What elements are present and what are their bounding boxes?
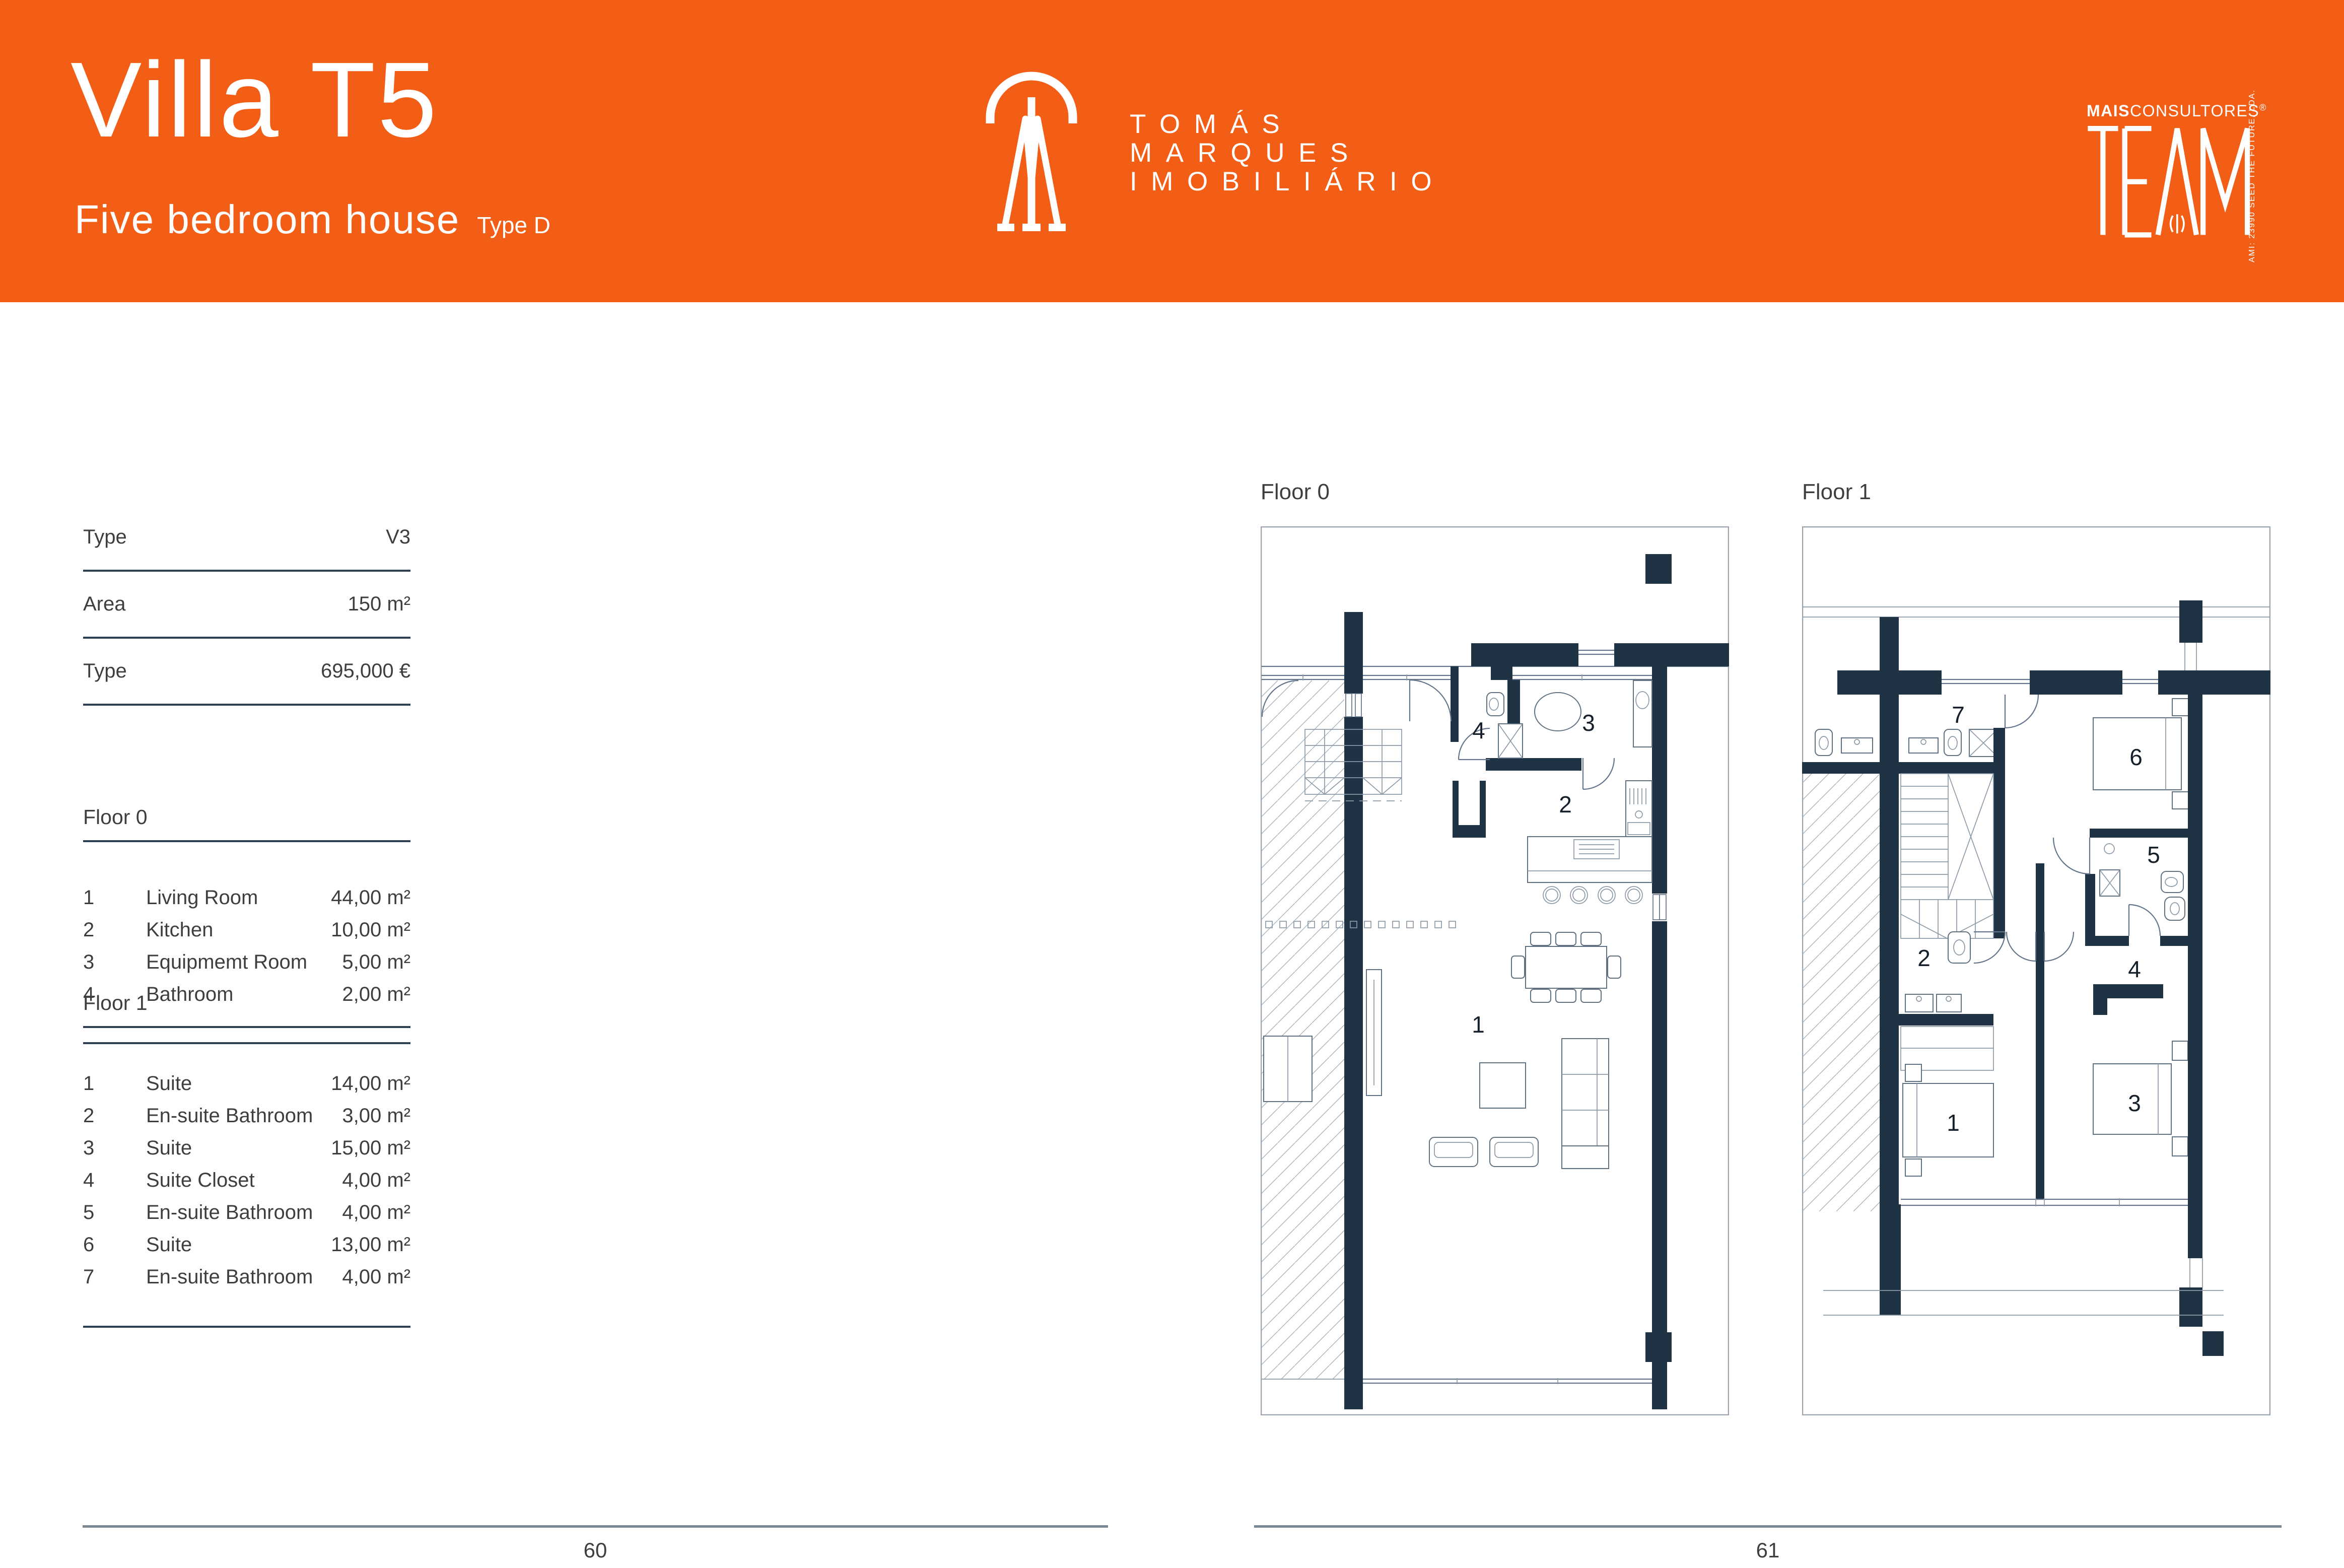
table-row: 1 Living Room 44,00 m² bbox=[83, 881, 410, 914]
room-area: 3,00 m² bbox=[342, 1105, 410, 1127]
floor1-table-rows: 1 Suite 14,00 m² 2 En-suite Bathroom 3,0… bbox=[83, 1028, 410, 1293]
header-band: Villa T5 Five bedroom house Type D TOMÁS… bbox=[0, 0, 2344, 302]
brand-name: TOMÁS MARQUES IMOBILIÁRIO bbox=[1130, 110, 1445, 196]
room-name: Living Room bbox=[146, 887, 331, 909]
brochure-page: Villa T5 Five bedroom house Type D TOMÁS… bbox=[0, 0, 2344, 1568]
floor1-room-2-label: 2 bbox=[1917, 945, 1931, 971]
spec-label: Type bbox=[83, 526, 127, 549]
brand-line-1: TOMÁS bbox=[1130, 110, 1445, 139]
floor1-room-6-label: 6 bbox=[2129, 744, 2143, 770]
room-area: 4,00 m² bbox=[342, 1169, 410, 1192]
footer-rule-right bbox=[1254, 1525, 2282, 1528]
page-subtitle: Five bedroom house Type D bbox=[75, 196, 550, 243]
page-title: Villa T5 bbox=[71, 46, 439, 153]
room-number: 2 bbox=[83, 1105, 146, 1127]
tm-monogram-icon bbox=[946, 70, 1117, 241]
room-number: 7 bbox=[83, 1266, 146, 1288]
room-area: 44,00 m² bbox=[331, 887, 410, 909]
spec-row-price: Type 695,000 € bbox=[83, 639, 410, 706]
brand-line-3: IMOBILIÁRIO bbox=[1130, 167, 1445, 196]
room-name: Equipmemt Room bbox=[146, 951, 342, 974]
room-number: 3 bbox=[83, 1137, 146, 1160]
room-number: 1 bbox=[83, 887, 146, 909]
room-name: Suite bbox=[146, 1234, 331, 1256]
room-number: 6 bbox=[83, 1234, 146, 1256]
room-area: 5,00 m² bbox=[342, 951, 410, 974]
type-tag: Type D bbox=[477, 212, 550, 239]
floor1-plan: 1 2 3 4 5 6 7 bbox=[1802, 526, 2270, 1415]
team-wordmark-icon bbox=[2084, 124, 2250, 239]
floor1-room-3-label: 3 bbox=[2128, 1090, 2141, 1116]
room-number: 2 bbox=[83, 919, 146, 941]
room-name: En-suite Bathroom bbox=[146, 1201, 342, 1224]
floor0-room-3-label: 3 bbox=[1582, 710, 1595, 736]
room-number: 4 bbox=[83, 1169, 146, 1192]
floor1-room-4-label: 4 bbox=[2128, 956, 2141, 982]
subtitle-text: Five bedroom house bbox=[75, 196, 460, 243]
table-row: 5 En-suite Bathroom 4,00 m² bbox=[83, 1196, 410, 1229]
floor1-plan-label: Floor 1 bbox=[1802, 480, 1871, 505]
floor0-plan: 1 2 3 4 bbox=[1261, 526, 1729, 1415]
floor0-room-1-label: 1 bbox=[1472, 1011, 1485, 1038]
spec-row-area: Area 150 m² bbox=[83, 572, 410, 639]
table-row: 2 Kitchen 10,00 m² bbox=[83, 914, 410, 946]
table-row: 6 Suite 13,00 m² bbox=[83, 1229, 410, 1261]
floor1-room-1-label: 1 bbox=[1947, 1110, 1960, 1136]
table-row: 2 En-suite Bathroom 3,00 m² bbox=[83, 1100, 410, 1132]
room-area: 14,00 m² bbox=[331, 1072, 410, 1095]
floor0-room-2-label: 2 bbox=[1559, 791, 1572, 817]
partner-name-rest: CONSULTORES bbox=[2130, 102, 2259, 120]
room-name: En-suite Bathroom bbox=[146, 1266, 342, 1288]
partner-name-bold: MAIS bbox=[2087, 102, 2130, 120]
spec-row-type: Type V3 bbox=[83, 505, 410, 572]
room-name: Suite bbox=[146, 1137, 331, 1160]
room-area: 15,00 m² bbox=[331, 1137, 410, 1160]
page-number-left: 60 bbox=[83, 1538, 1108, 1562]
brand-line-2: MARQUES bbox=[1130, 139, 1445, 167]
spec-table: Type V3 Area 150 m² Type 695,000 € bbox=[83, 505, 410, 706]
spec-value: 695,000 € bbox=[321, 660, 410, 683]
floor1-room-7-label: 7 bbox=[1952, 702, 1965, 728]
room-name: Suite bbox=[146, 1072, 331, 1095]
room-area: 13,00 m² bbox=[331, 1234, 410, 1256]
floor0-room-4-label: 4 bbox=[1472, 717, 1485, 743]
spec-value: V3 bbox=[386, 526, 410, 549]
room-number: 1 bbox=[83, 1072, 146, 1095]
room-number: 3 bbox=[83, 951, 146, 974]
footer-rule-left bbox=[83, 1525, 1108, 1528]
page-number-right: 61 bbox=[1254, 1538, 2282, 1562]
partner-license-text: AMI: 23990 SEED THE FUTURE, LDA. bbox=[2248, 101, 2257, 262]
floor1-room-5-label: 5 bbox=[2147, 842, 2160, 868]
floor0-plan-label: Floor 0 bbox=[1261, 480, 1330, 505]
floor1-plan-drawing: 1 2 3 4 5 6 7 bbox=[1802, 526, 2270, 1415]
partner-name: MAISCONSULTORES® bbox=[2087, 102, 2267, 120]
room-name: Suite Closet bbox=[146, 1169, 342, 1192]
spec-label: Type bbox=[83, 660, 127, 683]
room-area: 4,00 m² bbox=[342, 1201, 410, 1224]
spec-value: 150 m² bbox=[348, 593, 411, 616]
table-row: 4 Suite Closet 4,00 m² bbox=[83, 1164, 410, 1196]
room-area: 4,00 m² bbox=[342, 1266, 410, 1288]
floor0-table-title: Floor 0 bbox=[83, 786, 410, 842]
floor1-table: Floor 1 1 Suite 14,00 m² 2 En-suite Bath… bbox=[83, 971, 410, 1328]
table-row: 7 En-suite Bathroom 4,00 m² bbox=[83, 1261, 410, 1293]
spec-label: Area bbox=[83, 593, 126, 616]
table-row: 3 Suite 15,00 m² bbox=[83, 1132, 410, 1164]
partner-reg-mark: ® bbox=[2259, 102, 2267, 112]
room-name: Kitchen bbox=[146, 919, 331, 941]
room-number: 5 bbox=[83, 1201, 146, 1224]
floor1-table-title: Floor 1 bbox=[83, 971, 410, 1028]
table-row: 1 Suite 14,00 m² bbox=[83, 1067, 410, 1100]
floor0-plan-drawing: 1 2 3 4 bbox=[1261, 526, 1729, 1415]
room-name: En-suite Bathroom bbox=[146, 1105, 342, 1127]
room-area: 10,00 m² bbox=[331, 919, 410, 941]
